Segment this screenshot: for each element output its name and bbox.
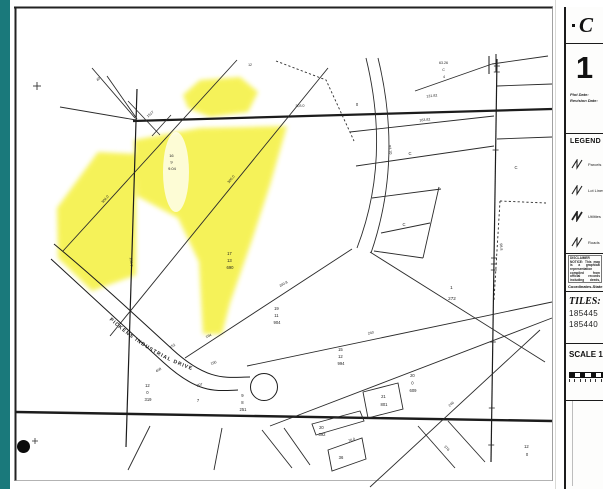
dimension-label: 131.82 (426, 93, 437, 98)
parcel-label: 20 392 (319, 425, 327, 437)
sheet-number: 1 (566, 52, 603, 83)
dimension-label: 240 (367, 330, 374, 335)
disclaimer-section: DISCLAIMER NOTICE: This map is a graphic… (566, 254, 603, 292)
line-sample-icon (570, 185, 584, 196)
dimension-label: 98.8 (499, 243, 504, 250)
highlight-gap (163, 132, 189, 212)
tile-value: 185445 (569, 309, 603, 318)
legend-title: LEGEND (570, 138, 603, 145)
highlight-region (183, 77, 258, 117)
scale-ticks (569, 379, 603, 382)
dimension-label: 303.0 (295, 104, 304, 108)
parcel-map-canvas: PICKENS INDUSTRIAL DRIVE 16 9 9.04 17 13… (0, 0, 603, 489)
bullet-icon (572, 24, 575, 27)
info-panel: C 1 Plot Date: Revision Date: LEGEND Par… (564, 7, 603, 489)
parcel-label: 0 (356, 102, 359, 107)
panel-footer (566, 401, 603, 486)
dimension-label: 76.0 (348, 437, 356, 443)
parcel-label: 12 0 (524, 444, 530, 457)
scale-title: SCALE 1 (569, 350, 603, 359)
scale-section: SCALE 1 (566, 344, 603, 401)
dimension-labels: 304.0 300.0 200.8 240 207 152 190 408 16… (95, 76, 503, 451)
highlight-region (57, 152, 136, 291)
legend-section: LEGEND Parcels Lot Lines Utilities Roads (566, 134, 603, 254)
parcel-label: 36 (339, 455, 344, 460)
dimension-label: 408 (155, 367, 162, 373)
dimension-label: 163.82 (419, 117, 430, 122)
parcel-label: 12 0 319 (145, 383, 153, 402)
coordinates-line: Coordinates-State Plane (568, 284, 602, 290)
tile-value: 185440 (569, 320, 603, 329)
disclaimer-text: DISCLAIMER NOTICE: This map is a graphic… (568, 255, 602, 283)
dimension-label: 190 (210, 360, 217, 366)
legend-item: Utilities (570, 209, 603, 223)
parcel-label: 9 8 251 (240, 393, 248, 412)
parcel-label: C (402, 222, 405, 227)
sheet-number-section: 1 Plot Date: Revision Date: (566, 44, 603, 134)
highlight-region (134, 126, 287, 334)
fold-line (572, 401, 573, 486)
tiles-title: TILES: (569, 296, 603, 307)
plus-mark-icon (33, 82, 41, 90)
parcel-label: 63.26 C 4 (439, 61, 449, 79)
revision-date-label: Revision Date: (570, 98, 603, 104)
dimension-label: 246 (448, 401, 455, 408)
legend-item-label: Parcels (588, 162, 601, 167)
scale-bar (569, 372, 603, 378)
panel-title-section: C (566, 7, 603, 44)
parcel-label: C (408, 151, 411, 156)
dimension-label: 106.7 (129, 257, 133, 266)
tiles-section: TILES: 185445 185440 (566, 292, 603, 344)
legend-item-label: Lot Lines (588, 188, 603, 193)
legend-item: Parcels (570, 157, 603, 171)
dashed-lines (276, 61, 546, 300)
county-title: C (579, 13, 593, 38)
dimension-label: 207 (196, 382, 203, 387)
legend-item-label: Utilities (588, 214, 601, 219)
parcel-label: 1 272 (448, 285, 456, 301)
legend-item: Roads (570, 235, 603, 249)
line-sample-icon (570, 211, 584, 222)
dimension-label: 376 (443, 445, 450, 452)
line-sample-icon (570, 237, 584, 248)
parcel-label: 19 11 904 (274, 306, 282, 325)
parcel-label: C (514, 165, 517, 170)
legend-item-label: Roads (588, 240, 600, 245)
dimension-label: 1517 (146, 110, 155, 118)
dot-marker (17, 440, 30, 453)
legend-item: Lot Lines (570, 183, 603, 197)
scanned-plat-page: { "sidebar": { "county_initial": "C", "s… (0, 0, 603, 489)
parcel-label: 21 801 (381, 394, 389, 407)
dimension-label: 200.8 (279, 280, 289, 288)
parcel-label: 7 (197, 398, 200, 403)
parcel-label: 15 12 994 (338, 347, 346, 366)
cul-de-sac (251, 374, 278, 401)
dimension-label: 93.10 (387, 145, 392, 154)
road-label: PICKENS INDUSTRIAL DRIVE (108, 317, 194, 372)
line-sample-icon (570, 159, 584, 170)
dimension-label: 152 (169, 343, 176, 350)
parcel-label: 12 (248, 63, 252, 67)
parcel-label: 20 0 609 (410, 373, 418, 393)
plus-mark-icon (32, 438, 38, 444)
